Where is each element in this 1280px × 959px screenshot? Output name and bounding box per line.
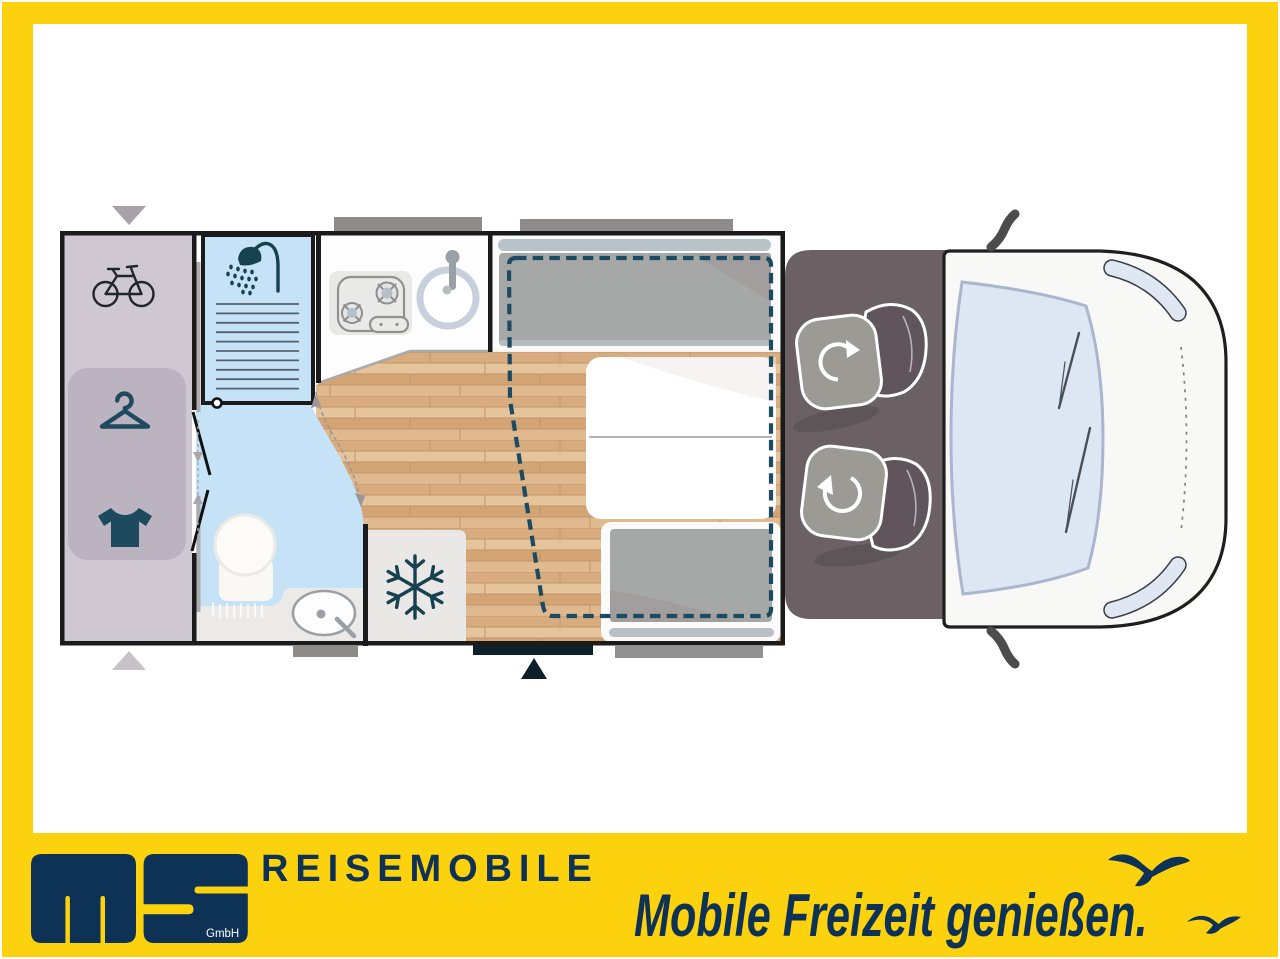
- svg-text:Mobile Freizeit genießen.: Mobile Freizeit genießen.: [634, 883, 1148, 950]
- svg-text:GmbH: GmbH: [206, 928, 239, 940]
- svg-text:REISEMOBILE: REISEMOBILE: [261, 848, 599, 890]
